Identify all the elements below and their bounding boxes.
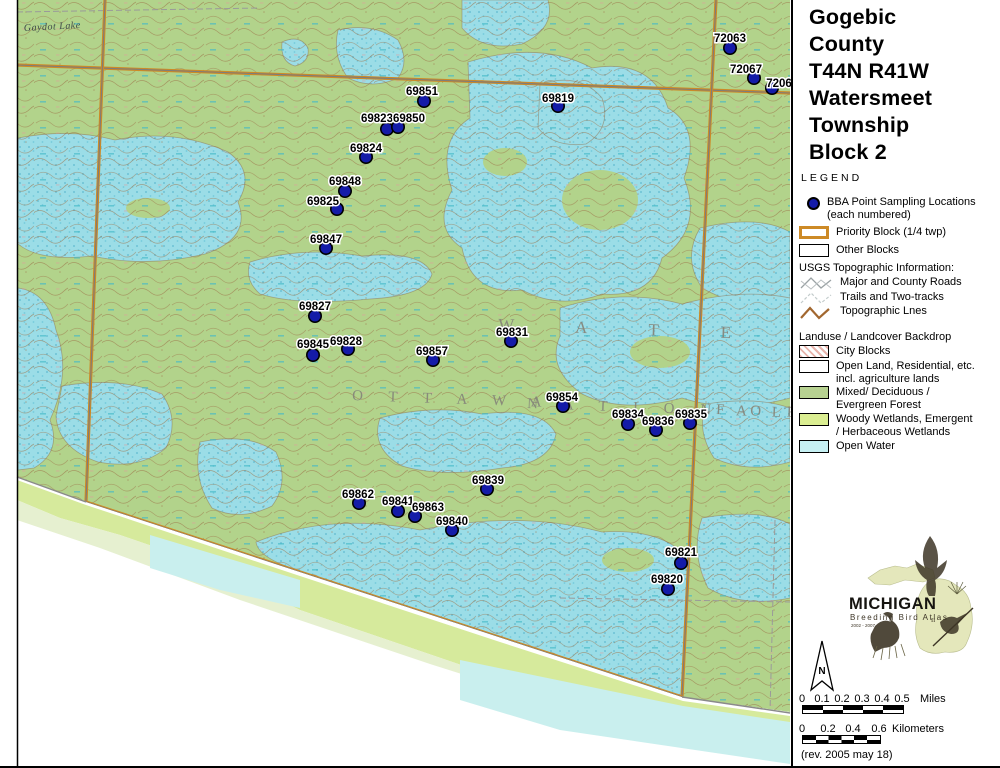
revision-note: (rev. 2005 may 18) — [801, 749, 893, 761]
sampling-point-label: 69857 — [416, 346, 448, 358]
sampling-point-label: 69820 — [651, 574, 683, 586]
legend-label: BBA Point Sampling Locations — [827, 196, 976, 209]
legend-item-city-blocks: City Blocks — [799, 345, 890, 358]
scale-tick-label: 0.5 — [894, 693, 909, 705]
topo-map: W A T E R S MO T T A W AN A T I O N A LF… — [0, 0, 791, 766]
scale-tick-label: 0.2 — [834, 693, 849, 705]
legend-label: Open Land, Residential, etc. — [836, 360, 975, 373]
sampling-point-label: 69863 — [412, 502, 444, 514]
map-title: Gogebic County T44N R41W Watersmeet Town… — [809, 4, 997, 166]
legend-heading: LEGEND — [801, 172, 862, 184]
legend-label: Open Water — [836, 440, 895, 453]
north-arrow-icon: N — [809, 640, 835, 692]
sampling-point-label: 69862 — [342, 489, 374, 501]
sampling-point-label: 69834 — [612, 409, 645, 421]
miles-unit-label: Miles — [920, 693, 946, 705]
km-scale-bar — [802, 735, 881, 744]
legend-item-other-blocks: Other Blocks — [799, 244, 899, 257]
logo-years: 2002 - 2007 — [851, 623, 876, 628]
legend-label: Evergreen Forest — [836, 399, 930, 412]
sampling-point-label: 69851 — [406, 86, 439, 98]
km-unit-label: Kilometers — [892, 723, 944, 735]
legend-item-woody-wetlands: Woody Wetlands, Emergent / Herbaceous We… — [799, 413, 973, 439]
sampling-point-label: 69835 — [675, 409, 708, 421]
sampling-point-label: 69850 — [393, 113, 425, 125]
legend-label: (each numbered) — [827, 209, 976, 222]
topo-map-canvas: W A T E R S MO T T A W AN A T I O N A LF… — [0, 0, 791, 766]
usgs-heading: USGS Topographic Information: — [799, 262, 954, 274]
legend-label: Major and County Roads — [840, 276, 962, 289]
sampling-point-label: 7206 — [766, 78, 791, 90]
sampling-point-symbol — [807, 197, 820, 210]
title-line: Township — [809, 112, 997, 139]
legend-label: / Herbaceous Wetlands — [836, 426, 973, 439]
sampling-point-label: 69841 — [382, 496, 415, 508]
north-label: N — [818, 666, 825, 677]
forest-name-letters: F O R — [716, 402, 791, 421]
sampling-point-label: 72063 — [714, 33, 746, 45]
open-water-swatch — [799, 440, 829, 453]
sampling-point-label: 69854 — [546, 392, 579, 404]
sampling-point-label: 72067 — [730, 64, 762, 76]
title-line: T44N R41W — [809, 58, 997, 85]
sampling-point-label: 69827 — [299, 301, 331, 313]
legend-label: incl. agriculture lands — [836, 373, 975, 386]
priority-block-symbol — [799, 226, 829, 239]
legend-label: City Blocks — [836, 345, 890, 358]
legend-label: Mixed/ Deciduous / — [836, 386, 930, 399]
sampling-point-label: 69821 — [665, 547, 698, 559]
legend-label: Woody Wetlands, Emergent — [836, 413, 973, 426]
sampling-point-label: 69848 — [329, 176, 362, 188]
logo-title: MICHIGAN — [849, 595, 936, 613]
other-block-symbol — [799, 244, 829, 257]
scale-tick-label: 0.6 — [871, 723, 886, 735]
sampling-point-label: 69824 — [350, 143, 383, 155]
scale-tick-label: 0.2 — [820, 723, 835, 735]
sampling-point-label: 69847 — [310, 234, 342, 246]
legend-panel: Gogebic County T44N R41W Watersmeet Town… — [791, 0, 1000, 766]
legend-label: Trails and Two-tracks — [840, 291, 944, 304]
scale-tick-label: 0 — [799, 723, 805, 735]
title-line: Block 2 — [809, 139, 997, 166]
sampling-point-label: 69840 — [436, 516, 468, 528]
legend-label: Topographic Lnes — [840, 305, 927, 318]
scale-tick-label: 0.1 — [814, 693, 829, 705]
legend-label: Other Blocks — [836, 244, 899, 257]
legend-label: Priority Block (1/4 twp) — [836, 226, 946, 239]
title-line: Watersmeet — [809, 85, 997, 112]
sampling-point-label: 69819 — [542, 93, 574, 105]
logo-numeral: II — [931, 617, 935, 624]
city-blocks-swatch — [799, 345, 829, 358]
landuse-heading: Landuse / Landcover Backdrop — [799, 331, 951, 343]
sampling-point-label: 69831 — [496, 327, 529, 339]
legend-item-open-water: Open Water — [799, 440, 895, 453]
sampling-point-label: 69828 — [330, 336, 363, 348]
map-sheet: W A T E R S MO T T A W AN A T I O N A LF… — [0, 0, 1000, 768]
scale-tick-label: 0 — [799, 693, 805, 705]
sampling-point-label: 69845 — [297, 339, 330, 351]
mixed-forest-swatch — [799, 386, 829, 399]
topo-line-icon — [799, 305, 833, 321]
legend-item-topo-lines: Topographic Lnes — [799, 305, 927, 321]
open-land-swatch — [799, 360, 829, 373]
legend-item-priority-block: Priority Block (1/4 twp) — [799, 226, 946, 239]
woody-wetlands-swatch — [799, 413, 829, 426]
scale-tick-label: 0.4 — [845, 723, 860, 735]
sampling-point-label: 69839 — [472, 475, 504, 487]
sampling-point-label: 69823 — [361, 113, 393, 125]
miles-scale-bar — [802, 705, 904, 714]
michigan-bba-logo: MICHIGAN Breeding Bird Atlas 2002 - 2007… — [845, 530, 999, 664]
legend-item-roads: Major and County Roads — [799, 276, 962, 292]
scale-tick-label: 0.3 — [854, 693, 869, 705]
scale-tick-label: 0.4 — [874, 693, 889, 705]
sampling-point-label: 69836 — [642, 416, 674, 428]
miles-tick-labels: 00.10.20.30.40.5 — [793, 693, 993, 705]
title-line: County — [809, 31, 997, 58]
road-line-icon — [799, 276, 833, 292]
title-line: Gogebic — [809, 4, 997, 31]
legend-item-bba-points: BBA Point Sampling Locations (each numbe… — [799, 196, 976, 222]
legend-item-mixed-forest: Mixed/ Deciduous / Evergreen Forest — [799, 386, 930, 412]
legend-item-open-land: Open Land, Residential, etc. incl. agric… — [799, 360, 975, 386]
sampling-point-label: 69825 — [307, 196, 340, 208]
